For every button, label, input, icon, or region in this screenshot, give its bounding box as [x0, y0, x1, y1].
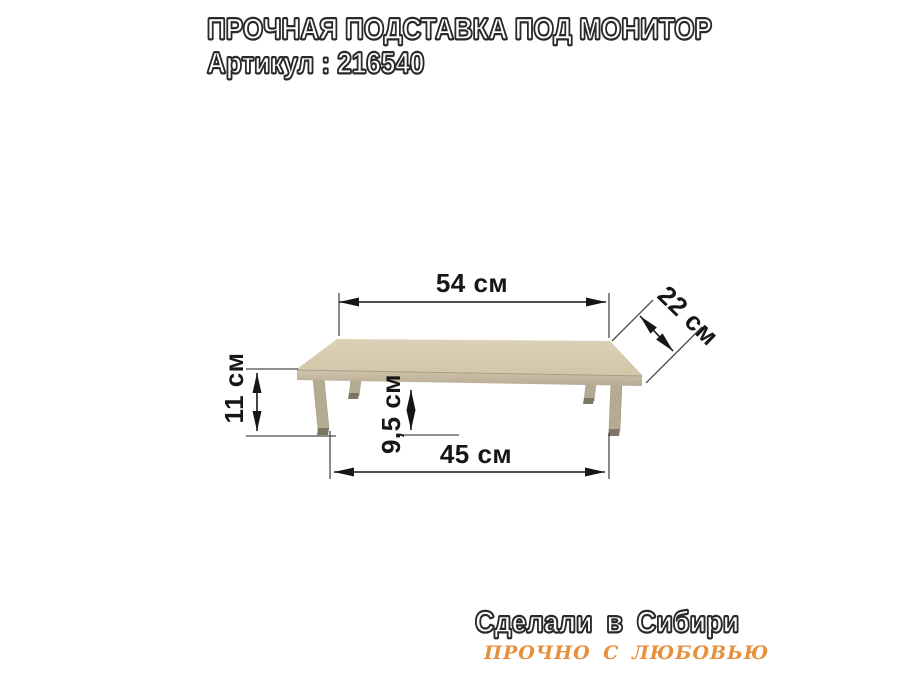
made-in-text: Сделали в Сибири: [475, 608, 739, 638]
slogan-text: ПРОЧНО С ЛЮБОВЬЮ: [484, 644, 769, 663]
board-top-surface: [297, 339, 642, 375]
stand-board: [297, 339, 642, 386]
dimension-top-width: 54 см: [339, 268, 609, 338]
leg-front-left: [313, 378, 329, 429]
stand-legs: [313, 378, 622, 436]
arrow-depth: [640, 316, 673, 351]
ext-line: [612, 300, 653, 341]
leg-front-right: [609, 383, 622, 430]
dimension-leg-span: 45 см: [330, 431, 609, 479]
label-leg-span: 45 см: [440, 439, 512, 469]
label-clearance: 9,5 см: [376, 374, 406, 454]
product-diagram: 54 см 22 см 11 см 9,5 см 45 см: [0, 0, 900, 675]
leg-front-right-cap: [608, 429, 620, 436]
leg-back-left-cap: [348, 393, 359, 399]
label-top-width: 54 см: [436, 268, 508, 298]
leg-front-left-cap: [317, 428, 329, 435]
leg-back-right-cap: [583, 398, 594, 404]
label-height: 11 см: [219, 353, 249, 424]
